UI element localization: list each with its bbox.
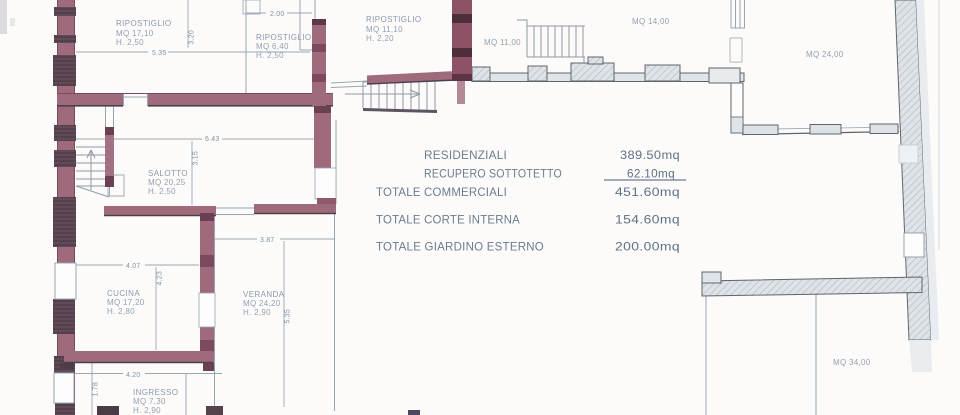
svg-text:MQ 7,30: MQ 7,30 <box>133 397 166 406</box>
svg-text:MQ 24,00: MQ 24,00 <box>806 50 844 59</box>
svg-text:MQ 20,25: MQ 20,25 <box>148 178 186 187</box>
svg-text:MQ 11,10: MQ 11,10 <box>366 25 403 34</box>
svg-text:RIPOSTIGLIO: RIPOSTIGLIO <box>256 33 312 42</box>
svg-text:2.00: 2.00 <box>270 11 284 18</box>
svg-text:4.23: 4.23 <box>157 271 164 285</box>
svg-text:TOTALE CORTE INTERNA: TOTALE CORTE INTERNA <box>376 213 521 227</box>
svg-text:MQ 17,20: MQ 17,20 <box>107 298 145 307</box>
svg-text:62.10mq: 62.10mq <box>627 167 675 181</box>
svg-text:3.87: 3.87 <box>260 237 274 244</box>
svg-text:MQ 14,00: MQ 14,00 <box>632 17 670 26</box>
svg-text:VERANDA: VERANDA <box>243 290 285 299</box>
svg-text:RIPOSTIGLIO: RIPOSTIGLIO <box>366 15 422 24</box>
svg-text:451.60mq: 451.60mq <box>615 185 680 199</box>
svg-text:200.00mq: 200.00mq <box>615 240 680 254</box>
svg-text:TOTALE COMMERCIALI: TOTALE COMMERCIALI <box>376 185 507 199</box>
svg-text:3.20: 3.20 <box>189 30 196 44</box>
svg-text:H. 2,50: H. 2,50 <box>148 187 176 196</box>
svg-text:4.07: 4.07 <box>126 263 140 270</box>
svg-text:4.20: 4.20 <box>126 372 140 379</box>
svg-text:SALOTTO: SALOTTO <box>148 169 188 178</box>
svg-text:TOTALE GIARDINO ESTERNO: TOTALE GIARDINO ESTERNO <box>376 240 544 254</box>
svg-text:1.78: 1.78 <box>93 382 100 396</box>
svg-text:H. 2,20: H. 2,20 <box>366 34 394 43</box>
svg-text:H. 2,90: H. 2,90 <box>243 308 271 317</box>
svg-text:5.35: 5.35 <box>285 309 292 323</box>
svg-text:MQ 11,00: MQ 11,00 <box>484 38 521 47</box>
svg-text:H. 2,50: H. 2,50 <box>116 38 144 47</box>
svg-text:RECUPERO SOTTOTETTO: RECUPERO SOTTOTETTO <box>424 167 562 181</box>
svg-text:MQ 6,40: MQ 6,40 <box>256 42 289 51</box>
svg-text:H. 2,90: H. 2,90 <box>133 406 161 415</box>
svg-text:MQ 34,00: MQ 34,00 <box>833 358 871 367</box>
svg-text:5.35: 5.35 <box>152 50 166 57</box>
svg-text:RESIDENZIALI: RESIDENZIALI <box>424 148 507 162</box>
svg-text:MQ 17,10: MQ 17,10 <box>116 29 154 38</box>
svg-text:389.50mq: 389.50mq <box>620 148 680 162</box>
svg-text:6.43: 6.43 <box>205 136 219 143</box>
svg-text:3.15: 3.15 <box>193 151 200 165</box>
svg-text:CUCINA: CUCINA <box>107 289 140 298</box>
svg-text:H. 2,50: H. 2,50 <box>256 51 284 60</box>
svg-text:154.60mq: 154.60mq <box>615 213 680 227</box>
svg-text:INGRESSO: INGRESSO <box>133 388 178 397</box>
svg-text:MQ 24,20: MQ 24,20 <box>243 299 281 308</box>
svg-text:RIPOSTIGLIO: RIPOSTIGLIO <box>116 19 172 28</box>
svg-text:H. 2,80: H. 2,80 <box>107 307 135 316</box>
